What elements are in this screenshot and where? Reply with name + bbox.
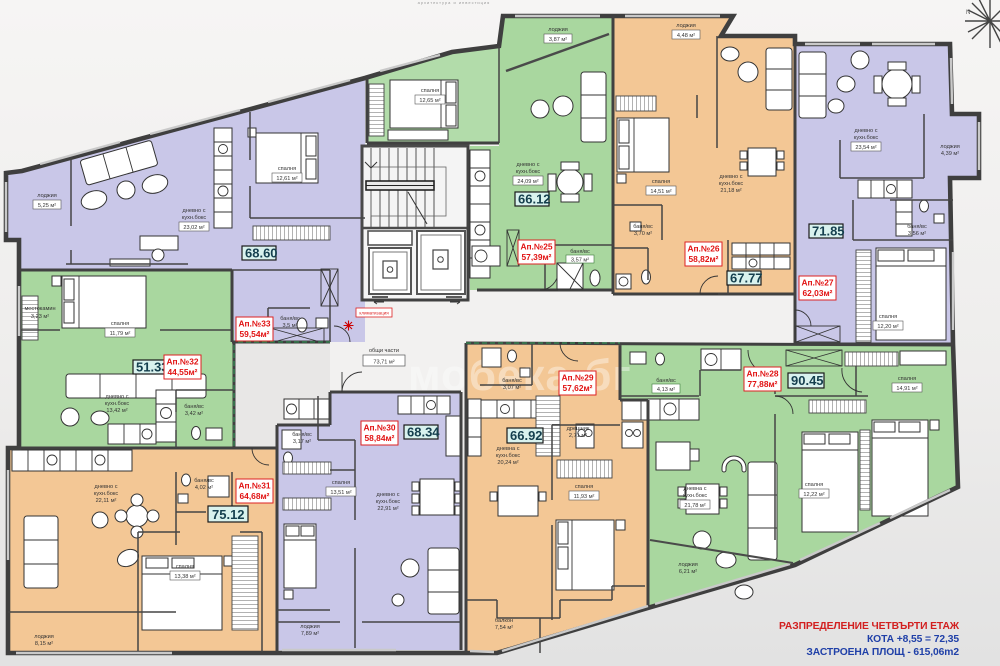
svg-text:общи части: общи части	[369, 348, 399, 354]
svg-text:спалня: спалня	[176, 564, 194, 570]
svg-text:13,38 м²: 13,38 м²	[174, 574, 195, 580]
svg-text:67.77: 67.77	[730, 271, 763, 286]
svg-text:3,23 м²: 3,23 м²	[31, 314, 49, 320]
svg-text:12,61 м²: 12,61 м²	[276, 176, 297, 182]
svg-text:баня/вс: баня/вс	[184, 404, 204, 410]
svg-text:баня/вс: баня/вс	[194, 478, 214, 484]
svg-text:дневно с: дневно с	[95, 484, 118, 490]
svg-text:44,55м²: 44,55м²	[168, 367, 198, 377]
svg-text:дневно с: дневно с	[183, 208, 206, 214]
svg-text:Ап.№32: Ап.№32	[166, 357, 198, 367]
svg-text:дневно с: дневно с	[517, 162, 540, 168]
svg-text:спалня: спалня	[879, 314, 897, 320]
svg-text:кухн.бокс: кухн.бокс	[854, 135, 879, 141]
svg-text:11,93 м²: 11,93 м²	[574, 494, 595, 500]
svg-text:64,68м²: 64,68м²	[240, 491, 270, 501]
svg-text:балкон: балкон	[495, 618, 513, 624]
svg-text:спалня: спалня	[332, 480, 350, 486]
svg-text:лоджия: лоджия	[940, 144, 959, 150]
svg-text:22,11 м²: 22,11 м²	[96, 498, 117, 504]
svg-text:23,02 м²: 23,02 м²	[183, 225, 204, 231]
svg-text:спалня: спалня	[111, 321, 129, 327]
svg-text:23,54 м²: 23,54 м²	[855, 145, 876, 151]
svg-text:баня/вс: баня/вс	[633, 224, 653, 230]
svg-text:8,15 м²: 8,15 м²	[35, 641, 53, 647]
svg-text:7,54 м²: 7,54 м²	[495, 625, 513, 631]
svg-text:13,51 м²: 13,51 м²	[330, 490, 351, 496]
svg-text:дневно с: дневно с	[106, 394, 129, 400]
svg-text:баня/вс: баня/вс	[656, 378, 676, 384]
svg-text:13,42 м²: 13,42 м²	[106, 408, 127, 414]
svg-text:кухн.бокс: кухн.бокс	[94, 491, 119, 497]
svg-text:баня/вс: баня/вс	[570, 249, 590, 255]
svg-text:3,56 м²: 3,56 м²	[908, 231, 926, 237]
svg-text:кухн.бокс: кухн.бокс	[376, 499, 401, 505]
svg-text:12,20 м²: 12,20 м²	[877, 324, 898, 330]
svg-text:спалня: спалня	[898, 376, 916, 382]
svg-text:21,18 м²: 21,18 м²	[720, 188, 741, 194]
svg-text:66.12: 66.12	[518, 192, 551, 207]
svg-text:68.60: 68.60	[245, 246, 278, 261]
svg-text:73,71 м²: 73,71 м²	[373, 360, 394, 366]
svg-text:58,82м²: 58,82м²	[689, 254, 719, 264]
svg-text:ЗАСТРОЕНА ПЛОЩ - 615,06m2: ЗАСТРОЕНА ПЛОЩ - 615,06m2	[806, 647, 959, 658]
svg-text:дрешник: дрешник	[567, 426, 590, 432]
svg-text:57,62м²: 57,62м²	[563, 383, 593, 393]
svg-text:62,03м²: 62,03м²	[803, 288, 833, 298]
svg-text:кухн.бокс: кухн.бокс	[683, 493, 708, 499]
svg-text:3,5 м²: 3,5 м²	[282, 323, 297, 329]
svg-text:5,25 м²: 5,25 м²	[38, 203, 56, 209]
svg-text:3,07 м²: 3,07 м²	[503, 385, 521, 391]
svg-text:дневно с: дневно с	[855, 128, 878, 134]
svg-text:14,91 м²: 14,91 м²	[896, 386, 917, 392]
svg-text:климатизация: климатизация	[359, 311, 389, 316]
svg-text:2,71 м²: 2,71 м²	[569, 433, 587, 439]
svg-text:22,91 м²: 22,91 м²	[377, 506, 398, 512]
svg-text:77,88м²: 77,88м²	[748, 379, 778, 389]
svg-text:кухн.бокс: кухн.бокс	[105, 401, 130, 407]
svg-text:баня/вс: баня/вс	[907, 224, 927, 230]
svg-text:21,78 м²: 21,78 м²	[684, 503, 705, 509]
svg-text:3,87 м²: 3,87 м²	[549, 37, 567, 43]
svg-text:Ап.№26: Ап.№26	[687, 244, 719, 254]
svg-text:РАЗПРЕДЕЛЕНИЕ ЧЕТВЪРТИ ЕТАЖ: РАЗПРЕДЕЛЕНИЕ ЧЕТВЪРТИ ЕТАЖ	[779, 621, 960, 632]
svg-text:90.45: 90.45	[791, 373, 824, 388]
svg-text:4,48 м²: 4,48 м²	[677, 33, 695, 39]
svg-text:дневна с: дневна с	[497, 446, 520, 452]
svg-text:58,84м²: 58,84м²	[365, 433, 395, 443]
svg-text:спалня: спалня	[278, 166, 296, 172]
svg-text:Ап.№28: Ап.№28	[746, 369, 778, 379]
svg-text:дневна с: дневна с	[684, 486, 707, 492]
svg-text:баня/вс: баня/вс	[502, 378, 522, 384]
svg-text:20,24 м²: 20,24 м²	[497, 460, 518, 466]
svg-text:спалня: спалня	[421, 88, 439, 94]
svg-text:спалня: спалня	[652, 179, 670, 185]
svg-text:дневно с: дневно с	[377, 492, 400, 498]
svg-text:архитектура и инвестиция: архитектура и инвестиция	[418, 0, 491, 5]
svg-text:14,51 м²: 14,51 м²	[650, 189, 671, 195]
svg-text:71.85: 71.85	[812, 224, 845, 239]
svg-text:кухн.бокс: кухн.бокс	[182, 215, 207, 221]
svg-text:дневно с: дневно с	[720, 174, 743, 180]
svg-text:Ап.№29: Ап.№29	[561, 373, 593, 383]
svg-text:24,09 м²: 24,09 м²	[517, 179, 538, 185]
svg-text:75.12: 75.12	[212, 507, 245, 522]
svg-text:кухн.бокс: кухн.бокс	[496, 453, 521, 459]
svg-text:12,65 м²: 12,65 м²	[419, 98, 440, 104]
svg-text:12,22 м²: 12,22 м²	[803, 492, 824, 498]
svg-text:лоджия: лоджия	[34, 634, 53, 640]
svg-text:спалня: спалня	[575, 484, 593, 490]
svg-text:7,89 м²: 7,89 м²	[301, 631, 319, 637]
svg-text:3,17 м²: 3,17 м²	[293, 439, 311, 445]
svg-text:местокамин: местокамин	[24, 306, 55, 312]
svg-text:баня/вс: баня/вс	[280, 316, 300, 322]
svg-text:Ап.№31: Ап.№31	[238, 481, 270, 491]
svg-text:Ап.№30: Ап.№30	[363, 423, 395, 433]
svg-text:N: N	[966, 10, 970, 16]
svg-text:лоджия: лоджия	[548, 27, 567, 33]
svg-text:лоджия: лоджия	[678, 562, 697, 568]
svg-text:КОТА +8,55 = 72,35: КОТА +8,55 = 72,35	[867, 634, 959, 645]
svg-text:57,39м²: 57,39м²	[522, 252, 552, 262]
svg-text:4,13 м²: 4,13 м²	[657, 387, 675, 393]
svg-text:спалня: спалня	[805, 482, 823, 488]
svg-text:кухн.бокс: кухн.бокс	[516, 169, 541, 175]
svg-text:11,79 м²: 11,79 м²	[110, 331, 131, 337]
svg-text:66.92: 66.92	[510, 428, 543, 443]
svg-text:4,39 м²: 4,39 м²	[941, 151, 959, 157]
svg-text:3,70 м²: 3,70 м²	[634, 231, 652, 237]
svg-text:Ап.№27: Ап.№27	[801, 278, 833, 288]
svg-text:68.34: 68.34	[407, 425, 440, 440]
svg-text:3,42 м²: 3,42 м²	[185, 411, 203, 417]
svg-text:баня/вс: баня/вс	[292, 432, 312, 438]
svg-text:Ап.№25: Ап.№25	[520, 242, 552, 252]
svg-text:лоджия: лоджия	[300, 624, 319, 630]
svg-text:лоджия: лоджия	[37, 193, 56, 199]
svg-text:лоджия: лоджия	[676, 23, 695, 29]
svg-text:6,21 м²: 6,21 м²	[679, 569, 697, 575]
svg-text:4,02 м²: 4,02 м²	[195, 485, 213, 491]
svg-text:3,57 м²: 3,57 м²	[571, 258, 589, 264]
svg-text:Ап.№33: Ап.№33	[238, 319, 270, 329]
svg-text:кухн.бокс: кухн.бокс	[719, 181, 744, 187]
svg-text:59,54м²: 59,54м²	[240, 329, 270, 339]
